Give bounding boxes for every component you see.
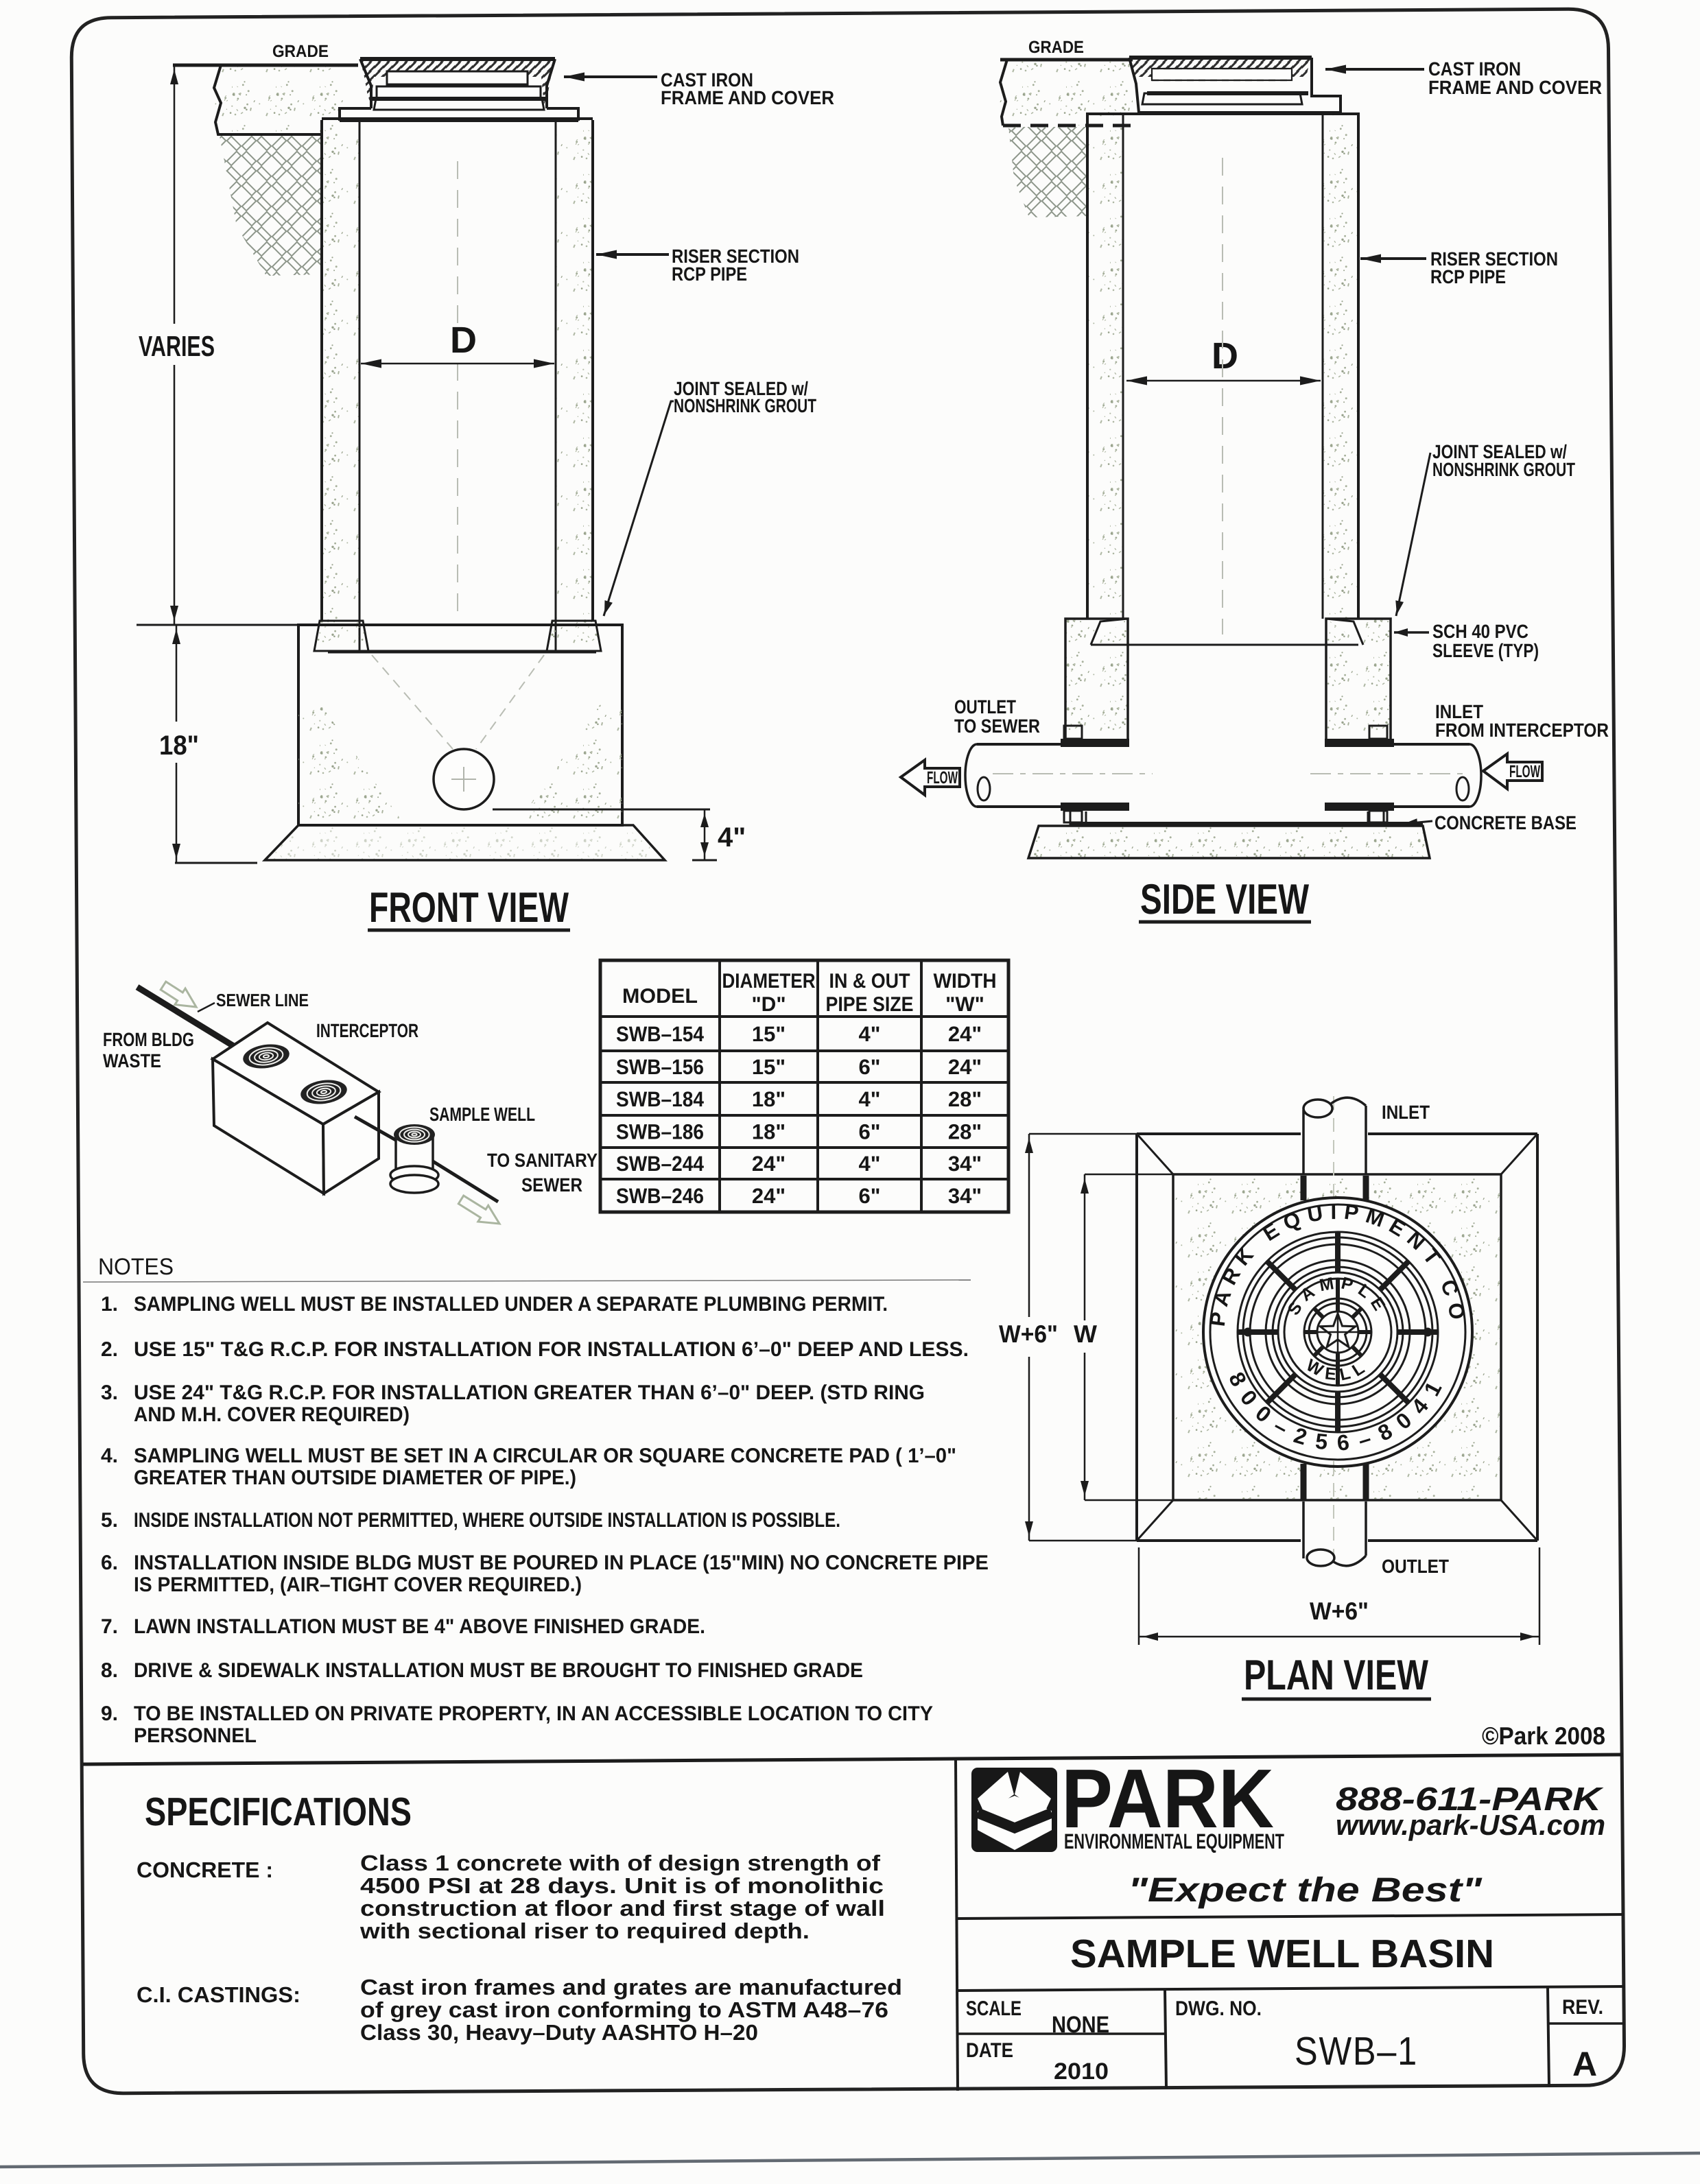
- svg-text:Class 30, Heavy–Duty AASHTO H–: Class 30, Heavy–Duty AASHTO H–20: [360, 2020, 758, 2045]
- svg-text:IN & OUT: IN & OUT: [829, 970, 910, 993]
- svg-text:28": 28": [948, 1120, 982, 1144]
- svg-text:SWB–1: SWB–1: [1295, 2029, 1418, 2074]
- svg-text:www.park-USA.com: www.park-USA.com: [1336, 1809, 1605, 1841]
- svg-text:INLET: INLET: [1382, 1102, 1430, 1123]
- svg-text:D: D: [450, 320, 477, 361]
- svg-text:RCP PIPE: RCP PIPE: [1430, 266, 1506, 287]
- svg-text:5.: 5.: [101, 1509, 118, 1532]
- svg-text:SAMPLING WELL MUST BE SET IN A: SAMPLING WELL MUST BE SET IN A CIRCULAR …: [134, 1445, 956, 1467]
- svg-text:©Park 2008: ©Park 2008: [1482, 1722, 1605, 1750]
- svg-text:SWB–246: SWB–246: [616, 1184, 704, 1208]
- svg-text:with sectional riser to requir: with sectional riser to required depth.: [359, 1919, 810, 1943]
- svg-text:INTERCEPTOR: INTERCEPTOR: [316, 1020, 418, 1041]
- svg-text:CONCRETE BASE: CONCRETE BASE: [1435, 812, 1577, 833]
- svg-text:15": 15": [752, 1022, 786, 1046]
- svg-text:"Expect the Best": "Expect the Best": [1128, 1871, 1483, 1909]
- svg-text:24": 24": [948, 1022, 982, 1046]
- svg-text:1.: 1.: [101, 1293, 118, 1316]
- svg-text:SEWER: SEWER: [521, 1174, 582, 1196]
- svg-text:SWB–156: SWB–156: [616, 1055, 704, 1079]
- svg-text:FRAME AND COVER: FRAME AND COVER: [1428, 77, 1602, 98]
- svg-text:24": 24": [752, 1152, 786, 1176]
- svg-text:GRADE: GRADE: [272, 42, 329, 61]
- svg-text:AND M.H. COVER REQUIRED): AND M.H. COVER REQUIRED): [134, 1403, 410, 1426]
- svg-text:SWB–184: SWB–184: [616, 1087, 705, 1111]
- svg-text:PLAN VIEW: PLAN VIEW: [1244, 1652, 1428, 1699]
- svg-text:WASTE: WASTE: [103, 1050, 161, 1071]
- svg-text:18": 18": [752, 1087, 786, 1111]
- svg-text:PERSONNEL: PERSONNEL: [134, 1724, 257, 1747]
- svg-text:9.: 9.: [101, 1702, 118, 1725]
- svg-text:DIAMETER: DIAMETER: [722, 970, 816, 993]
- svg-text:SCH 40 PVC: SCH 40 PVC: [1432, 621, 1528, 642]
- svg-text:24": 24": [948, 1055, 982, 1079]
- svg-text:NOTES: NOTES: [98, 1254, 174, 1280]
- svg-text:SIDE VIEW: SIDE VIEW: [1140, 876, 1309, 923]
- svg-text:SCALE: SCALE: [966, 1997, 1022, 2020]
- svg-text:WIDTH: WIDTH: [934, 970, 997, 993]
- svg-text:FLOW: FLOW: [1509, 762, 1540, 781]
- svg-text:RCP PIPE: RCP PIPE: [672, 263, 747, 285]
- svg-text:NONSHRINK GROUT: NONSHRINK GROUT: [1432, 459, 1575, 480]
- svg-text:4": 4": [859, 1152, 881, 1176]
- svg-text:USE 15" T&G R.C.P. FOR INSTALL: USE 15" T&G R.C.P. FOR INSTALLATION FOR …: [134, 1338, 969, 1361]
- svg-text:SWB–186: SWB–186: [616, 1120, 704, 1144]
- svg-text:SWB–154: SWB–154: [616, 1022, 705, 1046]
- svg-text:FROM INTERCEPTOR: FROM INTERCEPTOR: [1435, 720, 1609, 741]
- svg-text:24": 24": [752, 1184, 786, 1208]
- svg-text:W: W: [1074, 1320, 1097, 1348]
- svg-text:2010: 2010: [1054, 2058, 1109, 2085]
- svg-text:6": 6": [859, 1184, 881, 1208]
- svg-text:4": 4": [859, 1087, 881, 1111]
- svg-text:GRADE: GRADE: [1028, 38, 1084, 57]
- svg-text:construction at floor and firs: construction at floor and first stage of…: [360, 1896, 885, 1921]
- svg-text:DATE: DATE: [966, 2039, 1013, 2062]
- svg-text:15": 15": [752, 1055, 786, 1079]
- svg-text:"W": "W": [945, 993, 984, 1016]
- svg-text:4500 PSI at 28 days. Unit is: 4500 PSI at 28 days. Unit is of monolith…: [360, 1873, 884, 1898]
- svg-text:TO SANITARY: TO SANITARY: [487, 1150, 598, 1171]
- svg-text:18": 18": [159, 731, 199, 761]
- svg-text:DWG. NO.: DWG. NO.: [1175, 1997, 1262, 2020]
- svg-text:34": 34": [948, 1152, 982, 1176]
- svg-text:Class 1 concrete with of desig: Class 1 concrete with of design strength…: [360, 1851, 880, 1875]
- svg-text:MODEL: MODEL: [622, 985, 698, 1008]
- svg-text:CONCRETE :: CONCRETE :: [137, 1857, 273, 1882]
- svg-text:ENVIRONMENTAL EQUIPMENT: ENVIRONMENTAL EQUIPMENT: [1064, 1829, 1284, 1853]
- svg-text:SEWER LINE: SEWER LINE: [216, 990, 309, 1010]
- svg-text:of grey cast iron conforming t: of grey cast iron conforming to ASTM A48…: [360, 1997, 888, 2022]
- svg-text:"D": "D": [751, 993, 786, 1016]
- svg-text:FROM BLDG: FROM BLDG: [103, 1029, 194, 1050]
- svg-text:SPECIFICATIONS: SPECIFICATIONS: [145, 1790, 412, 1834]
- svg-text:6": 6": [859, 1120, 881, 1144]
- svg-text:INSIDE INSTALLATION NOT PERMIT: INSIDE INSTALLATION NOT PERMITTED, WHERE…: [134, 1509, 840, 1532]
- svg-text:LAWN INSTALLATION MUST BE 4" A: LAWN INSTALLATION MUST BE 4" ABOVE FINIS…: [134, 1615, 705, 1638]
- svg-text:6.: 6.: [101, 1552, 118, 1574]
- svg-text:USE 24" T&G R.C.P. FOR INSTALL: USE 24" T&G R.C.P. FOR INSTALLATION GREA…: [134, 1381, 925, 1404]
- svg-text:GREATER THAN OUTSIDE DIAMETER: GREATER THAN OUTSIDE DIAMETER OF PIPE.): [134, 1467, 576, 1489]
- svg-text:INSTALLATION INSIDE BLDG MUST: INSTALLATION INSIDE BLDG MUST BE POURED …: [134, 1552, 989, 1574]
- svg-text:NONSHRINK GROUT: NONSHRINK GROUT: [674, 395, 816, 416]
- svg-text:D: D: [1212, 335, 1238, 377]
- svg-text:SLEEVE (TYP): SLEEVE (TYP): [1432, 640, 1539, 661]
- svg-text:IS PERMITTED, (AIR–TIGHT COVER: IS PERMITTED, (AIR–TIGHT COVER REQUIRED.…: [134, 1574, 582, 1596]
- svg-text:OUTLET: OUTLET: [954, 696, 1016, 717]
- svg-text:7.: 7.: [101, 1615, 118, 1638]
- svg-text:SAMPLING WELL MUST BE INSTALLE: SAMPLING WELL MUST BE INSTALLED UNDER A …: [134, 1293, 888, 1316]
- svg-text:18": 18": [752, 1120, 786, 1144]
- svg-text:OUTLET: OUTLET: [1382, 1556, 1449, 1577]
- svg-text:PIPE SIZE: PIPE SIZE: [826, 993, 914, 1016]
- svg-text:FLOW: FLOW: [927, 768, 958, 787]
- svg-text:FRAME AND COVER: FRAME AND COVER: [661, 87, 834, 108]
- svg-text:3.: 3.: [101, 1381, 118, 1404]
- svg-text:DRIVE & SIDEWALK INSTALLATION: DRIVE & SIDEWALK INSTALLATION MUST BE BR…: [134, 1659, 863, 1682]
- svg-text:4.: 4.: [101, 1445, 118, 1467]
- svg-text:2.: 2.: [101, 1338, 118, 1361]
- svg-text:Cast iron frames and grates ar: Cast iron frames and grates are manufact…: [360, 1975, 902, 1999]
- svg-text:REV.: REV.: [1562, 1996, 1603, 2019]
- svg-text:FRONT VIEW: FRONT VIEW: [369, 884, 569, 931]
- svg-text:28": 28": [948, 1087, 982, 1111]
- svg-text:34": 34": [948, 1184, 982, 1208]
- svg-text:SAMPLE WELL BASIN: SAMPLE WELL BASIN: [1070, 1932, 1494, 1976]
- svg-text:TO SEWER: TO SEWER: [954, 715, 1040, 737]
- svg-text:SWB–244: SWB–244: [616, 1152, 705, 1176]
- svg-text:4": 4": [859, 1022, 881, 1046]
- svg-text:8.: 8.: [101, 1659, 118, 1682]
- svg-text:6": 6": [859, 1055, 881, 1079]
- svg-text:VARIES: VARIES: [139, 330, 215, 362]
- svg-text:C.I. CASTINGS:: C.I. CASTINGS:: [137, 1982, 300, 2007]
- svg-text:A: A: [1572, 2045, 1597, 2083]
- svg-text:W+6": W+6": [1310, 1597, 1369, 1625]
- svg-text:W+6": W+6": [999, 1320, 1058, 1348]
- svg-text:SAMPLE WELL: SAMPLE WELL: [429, 1104, 535, 1125]
- svg-text:TO BE INSTALLED ON PRIVATE PRO: TO BE INSTALLED ON PRIVATE PROPERTY, IN …: [134, 1702, 933, 1725]
- svg-text:4": 4": [718, 822, 746, 853]
